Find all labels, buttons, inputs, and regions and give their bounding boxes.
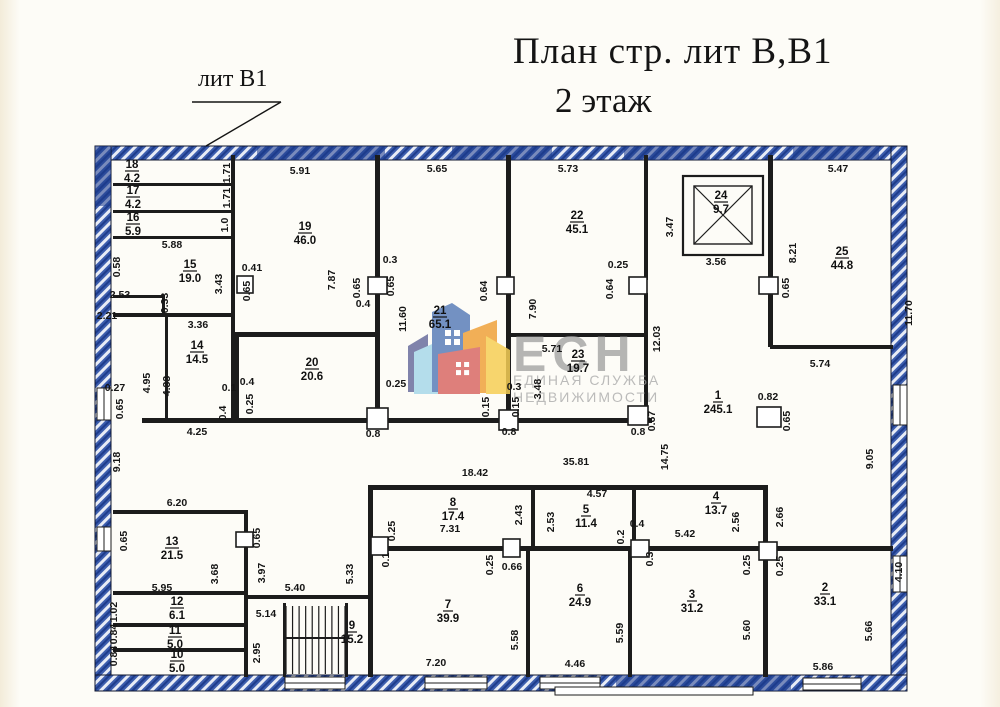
dimension-label: 2.66 — [774, 507, 786, 528]
dimension-label: 0.25 — [741, 555, 753, 576]
room-number: 15 — [184, 259, 197, 271]
wall-segment — [235, 337, 239, 420]
dimension-label: 0.65 — [781, 411, 793, 432]
dimension-label: 1.02 — [108, 602, 120, 623]
dimension-label: 0.66 — [502, 561, 523, 573]
dimension-label: 5.86 — [813, 661, 834, 673]
dimension-label: 5.88 — [162, 239, 183, 251]
dimension-label: 2.53 — [110, 289, 131, 301]
room-number: 11 — [169, 625, 182, 637]
room-label: 105.0 — [169, 649, 185, 675]
room-area: 20.6 — [301, 371, 323, 383]
dimension-label: 3.43 — [213, 274, 225, 295]
dimension-label: 5.91 — [290, 165, 311, 177]
outer-wall-window-band — [257, 146, 385, 160]
room-label: 413.7 — [705, 491, 727, 517]
room-area: 17.4 — [442, 511, 465, 523]
room-number: 9 — [349, 620, 355, 632]
wall-segment — [113, 591, 246, 595]
room-label: 1519.0 — [179, 259, 201, 285]
room-area: 39.9 — [437, 613, 459, 625]
dimension-label: 7.87 — [326, 270, 338, 291]
leader-line — [206, 102, 281, 146]
logo-window — [454, 339, 460, 345]
room-area: 21.5 — [161, 550, 184, 562]
column — [759, 277, 778, 294]
dimension-label: 2.56 — [730, 512, 742, 533]
dimension-label: 5.66 — [863, 621, 875, 642]
dimension-label: 12.03 — [651, 326, 663, 352]
porch-step — [555, 687, 753, 695]
room-label: 126.1 — [169, 596, 186, 622]
wall-segment — [531, 488, 535, 548]
room-number: 25 — [836, 246, 849, 258]
dimension-label: 35.81 — [563, 456, 589, 468]
dimension-label: 0.2 — [615, 530, 627, 545]
dimension-label: 0.65 — [385, 276, 397, 297]
wall-segment — [375, 155, 380, 280]
outer-wall-window-band — [452, 146, 552, 160]
dimension-label: 0.1 — [380, 553, 392, 568]
wall-segment — [644, 155, 648, 280]
dimension-label: 1.71 — [221, 188, 233, 209]
room-area: 9.7 — [713, 204, 729, 216]
dimension-label: 0.3 — [507, 381, 522, 393]
dimension-label: 3.36 — [188, 319, 209, 331]
room-area: 24.9 — [569, 597, 591, 609]
room-label: 624.9 — [569, 583, 591, 609]
dimension-label: 5.42 — [675, 528, 696, 540]
room-area: 4.2 — [124, 173, 140, 185]
wall-segment — [113, 510, 248, 514]
wall-segment — [763, 485, 768, 677]
dimension-label: 0.3 — [644, 552, 656, 567]
wall-segment — [375, 293, 380, 413]
wall-segment — [165, 315, 168, 420]
wall-segment — [368, 485, 768, 490]
dimension-label: 5.95 — [152, 582, 173, 594]
dimension-label: 14.75 — [659, 444, 671, 470]
room-label: 1414.5 — [186, 340, 209, 366]
dimension-label: 5.74 — [810, 358, 831, 370]
wall-segment — [768, 293, 773, 347]
dimension-label: 0.27 — [105, 382, 126, 394]
wall-segment — [506, 155, 511, 280]
room-label: 739.9 — [437, 599, 459, 625]
room-area: 13.7 — [705, 505, 727, 517]
room-label: 915.2 — [341, 620, 363, 646]
dimension-label: 0.64 — [604, 279, 616, 300]
dimension-label: 4.33 — [161, 376, 173, 397]
dimension-label: 0.41 — [242, 262, 263, 274]
dimension-label: 0.25 — [244, 394, 256, 415]
dimension-label: 0.15 — [480, 397, 492, 418]
room-number: 18 — [126, 159, 139, 171]
room-number: 20 — [306, 357, 319, 369]
dimension-label: 4.46 — [565, 658, 586, 670]
dimension-label: 0.4 — [240, 376, 255, 388]
room-area: 19.0 — [179, 273, 201, 285]
dimension-label: 0.64 — [478, 281, 490, 302]
room-number: 23 — [572, 349, 585, 361]
dimension-label: 0.8 — [366, 428, 381, 440]
room-area: 5.9 — [125, 226, 141, 238]
dimension-label: 11.70 — [903, 300, 915, 326]
dimension-label: 0.25 — [774, 556, 786, 577]
room-area: 14.5 — [186, 354, 209, 366]
room-label: 2544.8 — [831, 246, 854, 272]
wall-segment — [231, 315, 235, 420]
dimension-label: 0.67 — [646, 411, 658, 432]
wall-segment — [526, 551, 530, 677]
dimension-label: 0.25 — [386, 378, 407, 390]
dimension-label: 0.58 — [111, 257, 123, 278]
dimension-label: 7.20 — [426, 657, 447, 669]
dimension-label: 0.65 — [251, 528, 263, 549]
room-label: 2245.1 — [566, 210, 589, 236]
room-number: 6 — [577, 583, 583, 595]
room-number: 1 — [715, 390, 722, 402]
dimension-label: 9.05 — [864, 449, 876, 470]
dimension-label: 0.65 — [118, 531, 130, 552]
dimension-label: 5.14 — [256, 608, 277, 620]
dimension-label: 0.4 — [356, 298, 371, 310]
wall-segment — [248, 595, 370, 599]
dimension-label: 0.33 — [159, 293, 171, 314]
stairs — [286, 606, 345, 674]
dimension-label: 0.8 — [502, 426, 517, 438]
room-label: 1946.0 — [294, 221, 316, 247]
room-label: 249.7 — [713, 190, 729, 216]
dimension-label: 9.18 — [111, 452, 123, 473]
room-number: 5 — [583, 504, 590, 516]
dimension-label: 5.40 — [285, 582, 306, 594]
room-area: 31.2 — [681, 603, 703, 615]
dimension-label: 5.65 — [427, 163, 448, 175]
room-number: 2 — [822, 582, 828, 594]
dimension-label: 2.21 — [97, 310, 118, 322]
logo-window — [454, 330, 460, 336]
room-number: 4 — [713, 491, 720, 503]
column — [628, 406, 648, 425]
column — [757, 407, 781, 427]
dimension-label: 3.56 — [706, 256, 727, 268]
room-label: 331.2 — [681, 589, 703, 615]
room-label: 165.9 — [125, 212, 141, 238]
dimension-label: 0.65 — [780, 278, 792, 299]
dimension-label: 1.0 — [219, 218, 231, 233]
wall-segment — [113, 313, 235, 317]
dimension-label: 5.71 — [542, 343, 563, 355]
column — [629, 277, 647, 294]
room-number: 12 — [171, 596, 184, 608]
dimension-label: 7.31 — [440, 523, 461, 535]
room-area: 6.1 — [169, 610, 186, 622]
dimension-label: 0.1 — [222, 382, 237, 394]
room-label: 2020.6 — [301, 357, 323, 383]
room-number: 19 — [299, 221, 312, 233]
logo-window — [456, 362, 461, 367]
column — [367, 408, 388, 429]
dimension-label: 0.3 — [383, 254, 398, 266]
room-label: 115.0 — [167, 625, 183, 651]
room-area: 5.0 — [169, 663, 185, 675]
dimension-label: 6.20 — [167, 497, 188, 509]
dimension-label: 0.84 — [108, 646, 120, 667]
room-area: 44.8 — [831, 260, 854, 272]
logo-window — [445, 339, 451, 345]
dimension-label: 8.21 — [787, 243, 799, 264]
room-number: 3 — [689, 589, 695, 601]
room-area: 11.4 — [575, 518, 597, 530]
logo-window — [464, 370, 469, 375]
logo-window — [456, 370, 461, 375]
room-area: 65.1 — [429, 319, 452, 331]
dimension-label: 0.84 — [108, 624, 120, 645]
outer-wall-window-band — [624, 146, 710, 160]
room-label: 233.1 — [814, 582, 837, 608]
room-number: 16 — [127, 212, 140, 224]
wall-segment — [770, 345, 893, 349]
room-area: 19.7 — [567, 363, 589, 375]
floorplan-drawing: ЕСНЕДИНАЯ СЛУЖБАНЕДВИЖИМОСТИ5.915.655.73… — [0, 0, 1000, 707]
dimension-label: 0.65 — [241, 281, 253, 302]
wall-segment — [768, 155, 773, 280]
room-label: 817.4 — [442, 497, 465, 523]
dimension-label: 4.57 — [587, 488, 608, 500]
room-number: 7 — [445, 599, 451, 611]
room-area: 245.1 — [704, 404, 733, 416]
room-label: 1321.5 — [161, 536, 184, 562]
dimension-label: 2.95 — [251, 643, 263, 664]
room-number: 10 — [171, 649, 184, 661]
dimension-label: 0.8 — [631, 426, 646, 438]
room-number: 13 — [166, 536, 179, 548]
dimension-label: 0.65 — [114, 399, 126, 420]
room-number: 14 — [191, 340, 204, 352]
dimension-label: 5.59 — [614, 623, 626, 644]
column — [503, 539, 520, 557]
room-area: 33.1 — [814, 596, 837, 608]
dimension-label: 0.25 — [608, 259, 629, 271]
dimension-label: 18.42 — [462, 467, 488, 479]
dimension-label: 2.43 — [513, 505, 525, 526]
wall-segment — [235, 332, 380, 337]
dimension-label: 5.60 — [741, 620, 753, 641]
dimension-label: 11.60 — [397, 306, 409, 332]
dimension-label: 4.95 — [141, 373, 153, 394]
outer-wall-window-band — [95, 146, 111, 206]
room-number: 21 — [434, 305, 447, 317]
wall-segment — [368, 485, 373, 677]
dimension-label: 0.15 — [510, 397, 522, 418]
dimension-label: 4.25 — [187, 426, 208, 438]
dimension-label: 0.4 — [630, 518, 645, 530]
room-area: 15.2 — [341, 634, 363, 646]
outer-wall-window-band — [793, 146, 879, 160]
room-area: 45.1 — [566, 224, 589, 236]
column — [497, 277, 514, 294]
wall-segment — [628, 551, 632, 677]
room-label: 174.2 — [125, 185, 141, 211]
logo-window — [464, 362, 469, 367]
dimension-label: 5.73 — [558, 163, 579, 175]
watermark-logo — [408, 303, 510, 394]
dimension-label: 5.47 — [828, 163, 849, 175]
room-label: 511.4 — [575, 504, 597, 530]
floorplan-page: План стр. лит В,В1 2 этаж лит В1 ЕСНЕДИН… — [0, 0, 1000, 707]
room-number: 8 — [450, 497, 457, 509]
dimension-label: 0.82 — [758, 391, 779, 403]
dimension-label: 3.68 — [209, 564, 221, 585]
dimension-label: 7.90 — [527, 299, 539, 320]
dimension-label: 5.33 — [344, 564, 356, 585]
dimension-label: 3.97 — [256, 563, 268, 584]
room-area: 46.0 — [294, 235, 316, 247]
dimension-label: 0.25 — [484, 555, 496, 576]
dimension-label: 3.47 — [664, 217, 676, 238]
room-number: 17 — [127, 185, 140, 197]
dimension-label: 0.4 — [217, 406, 229, 421]
room-label: 1245.1 — [704, 390, 733, 416]
room-number: 22 — [571, 210, 584, 222]
room-area: 4.2 — [125, 199, 141, 211]
dimension-label: 0.25 — [386, 521, 398, 542]
dimension-label: 4.10 — [893, 562, 905, 583]
room-number: 24 — [715, 190, 728, 202]
room-label: 184.2 — [124, 159, 140, 185]
dimension-label: 3.48 — [532, 379, 544, 400]
dimension-label: 2.53 — [545, 512, 557, 533]
dimension-label: 1.71 — [221, 163, 233, 184]
dimension-label: 0.65 — [351, 278, 363, 299]
dimension-label: 5.58 — [509, 630, 521, 651]
